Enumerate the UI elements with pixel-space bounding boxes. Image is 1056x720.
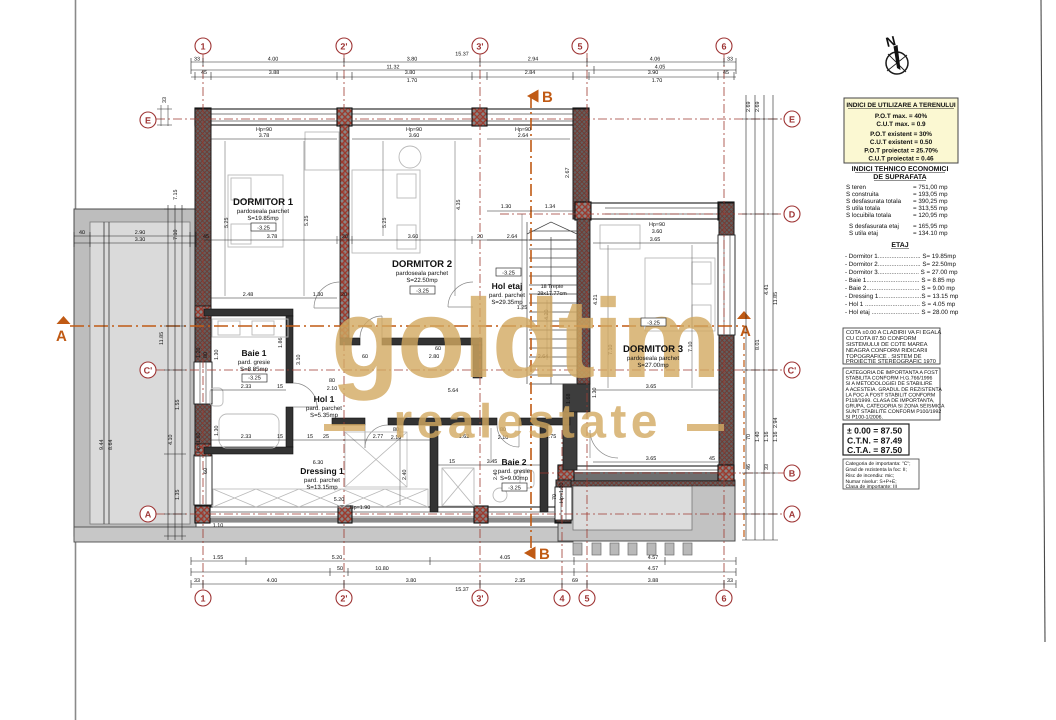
svg-text:INDICI TEHNICO ECONOMICI: INDICI TEHNICO ECONOMICI <box>852 166 949 173</box>
svg-text:S=19.85mp: S=19.85mp <box>247 215 279 222</box>
svg-text:- Baie 1......................: - Baie 1............................... … <box>845 277 955 284</box>
svg-text:1.30: 1.30 <box>214 350 220 361</box>
svg-text:pard. gresie: pard. gresie <box>238 359 271 366</box>
svg-text:C.U.T proiectat = 0.46: C.U.T proiectat = 0.46 <box>868 156 934 163</box>
svg-text:- Dormitor 2..................: - Dormitor 2......................... S=… <box>845 261 956 268</box>
svg-text:E: E <box>145 116 151 126</box>
svg-text:A: A <box>740 323 751 340</box>
svg-text:3.60: 3.60 <box>408 234 419 240</box>
svg-text:11.32: 11.32 <box>386 65 399 71</box>
svg-text:80: 80 <box>203 352 209 358</box>
svg-text:S utila etaj: S utila etaj <box>849 230 878 237</box>
svg-text:S=9.00mp: S=9.00mp <box>500 475 529 482</box>
svg-text:33: 33 <box>194 57 200 63</box>
svg-text:15.37: 15.37 <box>455 587 469 593</box>
svg-text:3.88: 3.88 <box>269 70 280 76</box>
svg-text:S teren: S teren <box>846 184 867 191</box>
svg-text:4.10: 4.10 <box>168 435 174 446</box>
svg-text:DORMITOR 2: DORMITOR 2 <box>392 259 452 270</box>
svg-text:S=5.35mp: S=5.35mp <box>310 412 339 419</box>
svg-text:3.60: 3.60 <box>652 229 663 235</box>
svg-text:3.30: 3.30 <box>135 237 146 243</box>
svg-text:46: 46 <box>746 464 752 470</box>
svg-text:2.64: 2.64 <box>507 234 518 240</box>
svg-text:Hp=1.00: Hp=1.00 <box>559 482 565 503</box>
svg-text:5: 5 <box>584 594 589 604</box>
svg-text:P.O.T proiectat = 25.70%: P.O.T proiectat = 25.70% <box>864 148 938 155</box>
svg-text:3.90: 3.90 <box>648 70 659 76</box>
svg-text:B: B <box>789 469 796 479</box>
svg-text:15.37: 15.37 <box>455 52 469 58</box>
svg-text:4.35: 4.35 <box>456 200 462 211</box>
svg-text:S=13.15mp: S=13.15mp <box>306 484 338 491</box>
svg-text:ETAJ: ETAJ <box>891 242 908 249</box>
svg-text:pardoseala parchet: pardoseala parchet <box>627 355 679 362</box>
svg-text:DORMITOR 3: DORMITOR 3 <box>623 344 683 355</box>
svg-text:= 751,00 mp: = 751,00 mp <box>913 184 948 191</box>
svg-text:1.10: 1.10 <box>213 523 224 529</box>
svg-text:4: 4 <box>559 594 564 604</box>
svg-text:= 120,95 mp: = 120,95 mp <box>913 212 948 219</box>
svg-text:2.33: 2.33 <box>241 434 252 440</box>
svg-text:-3.25: -3.25 <box>508 486 521 492</box>
svg-text:5.25: 5.25 <box>304 216 310 227</box>
svg-text:- Dormitor 1..................: - Dormitor 1......................... S=… <box>845 253 956 260</box>
svg-text:45: 45 <box>723 70 729 76</box>
svg-text:2.35: 2.35 <box>515 578 526 584</box>
svg-text:5.20: 5.20 <box>334 497 345 503</box>
svg-text:3.80: 3.80 <box>405 70 416 76</box>
svg-text:1.20: 1.20 <box>196 348 202 359</box>
svg-text:20: 20 <box>477 234 483 240</box>
svg-text:45: 45 <box>709 456 715 462</box>
svg-text:1.55: 1.55 <box>175 400 181 411</box>
svg-text:Hol etaj: Hol etaj <box>492 281 523 291</box>
svg-text:- Hol etaj ...................: - Hol etaj ............................ … <box>845 309 959 316</box>
svg-text:± 0.00 = 87.50: ± 0.00 = 87.50 <box>847 426 902 436</box>
svg-text:S locuibila totala: S locuibila totala <box>846 212 892 219</box>
svg-text:3': 3' <box>476 42 483 52</box>
svg-text:pard. parchet: pard. parchet <box>304 477 340 484</box>
svg-text:25: 25 <box>323 434 329 440</box>
svg-text:1.16: 1.16 <box>773 432 779 443</box>
svg-text:D: D <box>789 210 796 220</box>
svg-text:2.77: 2.77 <box>373 434 384 440</box>
svg-text:1.86: 1.86 <box>278 338 284 349</box>
svg-text:-3.25: -3.25 <box>502 271 515 277</box>
svg-text:= 193,05 mp: = 193,05 mp <box>913 191 948 198</box>
svg-text:Dressing 1: Dressing 1 <box>300 466 344 476</box>
svg-text:5.20: 5.20 <box>332 555 343 561</box>
svg-text:3.78: 3.78 <box>259 133 270 139</box>
svg-text:-3.25: -3.25 <box>647 321 660 327</box>
svg-text:3.80: 3.80 <box>407 57 418 63</box>
svg-text:2.48: 2.48 <box>243 292 254 298</box>
svg-text:S=29.35mp: S=29.35mp <box>491 299 523 306</box>
svg-text:4.05: 4.05 <box>500 555 511 561</box>
svg-text:1.30: 1.30 <box>214 426 220 437</box>
svg-text:7.10: 7.10 <box>173 230 179 241</box>
svg-text:3': 3' <box>476 594 483 604</box>
svg-text:pard. gresie: pard. gresie <box>498 468 531 475</box>
svg-text:1: 1 <box>200 594 205 604</box>
svg-text:1.34: 1.34 <box>545 204 556 210</box>
svg-text:15: 15 <box>277 384 283 390</box>
svg-text:DE SUPRAFATA: DE SUPRAFATA <box>873 174 926 181</box>
svg-text:goldtim: goldtim <box>331 276 721 401</box>
svg-text:33: 33 <box>162 97 168 103</box>
svg-text:5: 5 <box>577 42 582 52</box>
svg-text:33: 33 <box>764 464 770 470</box>
svg-text:- Dressing 1..................: - Dressing 1.........................S =… <box>845 293 959 300</box>
svg-text:Clasa de importante: III: Clasa de importante: III <box>846 484 898 490</box>
svg-text:INDICI DE UTILIZARE A TERENULU: INDICI DE UTILIZARE A TERENULUI <box>846 102 955 109</box>
svg-text:Hp=1.90: Hp=1.90 <box>350 505 371 511</box>
svg-text:S=8.85mp: S=8.85mp <box>240 366 269 373</box>
svg-text:pardoseala parchet: pardoseala parchet <box>237 208 289 215</box>
svg-text:33: 33 <box>727 57 733 63</box>
svg-text:3.78: 3.78 <box>267 234 278 240</box>
svg-text:4.00: 4.00 <box>267 578 278 584</box>
svg-text:2.40: 2.40 <box>402 470 408 481</box>
svg-text:2.64: 2.64 <box>518 133 529 139</box>
svg-text:pard. parchet: pard. parchet <box>489 292 525 299</box>
svg-text:3.10: 3.10 <box>296 355 302 366</box>
svg-text:1.35: 1.35 <box>175 490 181 501</box>
svg-text:45: 45 <box>203 234 209 240</box>
svg-text:C.U.T max. = 0.9: C.U.T max. = 0.9 <box>876 121 926 128</box>
svg-text:4.57: 4.57 <box>648 555 659 561</box>
svg-text:= 134.10 mp: = 134.10 mp <box>913 230 948 237</box>
svg-text:4.06: 4.06 <box>650 57 661 63</box>
svg-text:-3.25: -3.25 <box>248 376 261 382</box>
svg-text:S construita: S construita <box>846 191 879 198</box>
svg-text:C': C' <box>144 366 153 376</box>
svg-text:B: B <box>539 546 550 563</box>
svg-text:2.67: 2.67 <box>565 168 571 179</box>
svg-text:1.30: 1.30 <box>313 292 324 298</box>
svg-text:PROIECTIE STEREOGRAFIC 1970: PROIECTIE STEREOGRAFIC 1970 <box>846 359 936 365</box>
svg-text:Baie 1: Baie 1 <box>241 348 266 358</box>
svg-text:pard. parchet: pard. parchet <box>306 405 342 412</box>
svg-text:6: 6 <box>721 42 726 52</box>
svg-text:pardoseala parchet: pardoseala parchet <box>396 270 448 277</box>
svg-text:P.O.T max. = 40%: P.O.T max. = 40% <box>875 113 928 120</box>
svg-text:= 165,95 mp: = 165,95 mp <box>913 223 948 230</box>
svg-text:1: 1 <box>200 42 205 52</box>
svg-text:1.30: 1.30 <box>501 204 512 210</box>
svg-text:1.16: 1.16 <box>764 432 770 443</box>
svg-text:15: 15 <box>277 434 283 440</box>
svg-text:10.80: 10.80 <box>375 566 389 572</box>
svg-text:Hp=1.60: Hp=1.60 <box>196 432 202 453</box>
svg-text:A: A <box>145 510 152 520</box>
svg-text:9.44: 9.44 <box>99 440 105 451</box>
svg-text:3.45: 3.45 <box>487 459 498 465</box>
svg-text:11.85: 11.85 <box>773 292 779 305</box>
svg-text:33: 33 <box>194 578 200 584</box>
svg-text:1.70: 1.70 <box>652 78 663 84</box>
svg-text:3.65: 3.65 <box>650 237 661 243</box>
svg-text:70: 70 <box>552 494 558 500</box>
svg-text:8.01: 8.01 <box>755 340 761 351</box>
svg-text:-3.25: -3.25 <box>416 289 429 295</box>
svg-text:50: 50 <box>337 566 343 572</box>
svg-text:Baie 2: Baie 2 <box>501 457 526 467</box>
svg-text:70: 70 <box>746 434 752 440</box>
svg-text:Hol 1: Hol 1 <box>314 394 335 404</box>
svg-text:DORMITOR 1: DORMITOR 1 <box>233 197 294 208</box>
svg-text:S=22.50mp: S=22.50mp <box>406 277 438 284</box>
svg-text:4.00: 4.00 <box>268 57 279 63</box>
svg-text:3.65: 3.65 <box>646 456 657 462</box>
svg-text:A: A <box>56 328 67 345</box>
svg-text:2.33: 2.33 <box>241 384 252 390</box>
svg-text:S desfasurata totala: S desfasurata totala <box>846 198 902 205</box>
svg-text:69: 69 <box>572 578 578 584</box>
svg-text:4.57: 4.57 <box>648 566 659 572</box>
svg-text:1.55: 1.55 <box>213 555 224 561</box>
svg-text:C.T.A. = 87.50: C.T.A. = 87.50 <box>847 445 902 455</box>
svg-text:45: 45 <box>201 70 207 76</box>
svg-text:6: 6 <box>721 594 726 604</box>
svg-text:3.80: 3.80 <box>406 578 417 584</box>
svg-text:1.70: 1.70 <box>407 78 418 84</box>
svg-text:= 390,25 mp: = 390,25 mp <box>913 198 948 205</box>
svg-text:7.15: 7.15 <box>173 190 179 201</box>
svg-text:S=27.00mp: S=27.00mp <box>637 362 669 369</box>
svg-text:60: 60 <box>203 468 209 474</box>
svg-text:Hp=90: Hp=90 <box>649 222 665 228</box>
svg-text:B: B <box>542 89 553 106</box>
svg-text:2.69: 2.69 <box>755 102 761 113</box>
svg-text:P.O.T existent = 30%: P.O.T existent = 30% <box>870 131 932 138</box>
svg-text:2': 2' <box>340 594 347 604</box>
svg-text:2.84: 2.84 <box>525 70 536 76</box>
svg-text:= 313,55 mp: = 313,55 mp <box>913 205 948 212</box>
svg-text:-3.25: -3.25 <box>257 226 270 232</box>
svg-text:3.60: 3.60 <box>409 133 420 139</box>
svg-text:15: 15 <box>449 459 455 465</box>
svg-text:2.94: 2.94 <box>528 57 539 63</box>
svg-text:1.40: 1.40 <box>755 432 761 443</box>
svg-text:11.85: 11.85 <box>159 332 165 345</box>
svg-text:C': C' <box>788 366 797 376</box>
svg-text:8.64: 8.64 <box>108 440 114 451</box>
svg-text:- Dormitor 3..................: - Dormitor 3........................ S =… <box>845 269 958 276</box>
svg-text:15: 15 <box>307 434 313 440</box>
svg-text:S utila totala: S utila totala <box>846 205 881 212</box>
svg-text:C.U.T existent = 0.50: C.U.T existent = 0.50 <box>870 139 933 146</box>
svg-text:C.T.N. = 87.49: C.T.N. = 87.49 <box>847 436 902 446</box>
svg-text:2.94: 2.94 <box>773 418 779 429</box>
svg-text:3.88: 3.88 <box>648 578 659 584</box>
svg-text:SI P100-1/2006.: SI P100-1/2006. <box>846 414 884 420</box>
svg-text:S desfasurata etaj: S desfasurata etaj <box>849 223 899 230</box>
svg-text:4.41: 4.41 <box>764 285 770 296</box>
svg-text:A: A <box>789 510 796 520</box>
svg-text:2.90: 2.90 <box>135 230 146 236</box>
svg-text:2.69: 2.69 <box>746 102 752 113</box>
svg-text:- Baie 2......................: - Baie 2............................... … <box>845 285 955 292</box>
svg-text:20: 20 <box>342 234 348 240</box>
svg-text:2': 2' <box>340 42 347 52</box>
svg-text:E: E <box>789 115 795 125</box>
svg-text:- Hol 1 ......................: - Hol 1 ................................… <box>845 301 956 308</box>
svg-text:33: 33 <box>727 578 733 584</box>
svg-text:40: 40 <box>79 230 85 236</box>
